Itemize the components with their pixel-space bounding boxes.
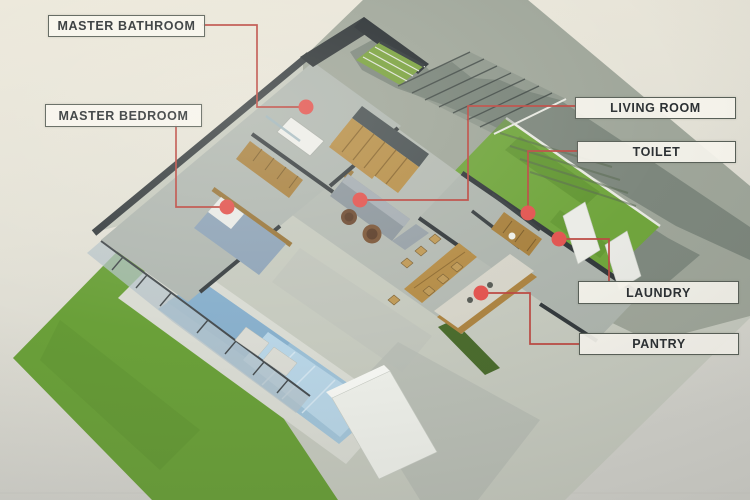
kitchen-stove xyxy=(487,282,493,288)
toilet-fixture xyxy=(509,233,516,240)
label-master-bedroom: MASTER BEDROOM xyxy=(45,104,202,127)
label-pantry-text: PANTRY xyxy=(632,337,686,351)
ottoman-top xyxy=(367,229,378,240)
floor-plan-photo: MASTER BATHROOM MASTER BEDROOM LIVING RO… xyxy=(0,0,750,500)
label-living-room: LIVING ROOM xyxy=(575,97,736,119)
label-living-room-text: LIVING ROOM xyxy=(610,101,701,115)
label-laundry-text: LAUNDRY xyxy=(626,286,691,300)
marker-dot-pantry xyxy=(474,286,489,301)
label-master-bathroom: MASTER BATHROOM xyxy=(48,15,205,37)
isometric-scene xyxy=(0,0,750,500)
label-master-bedroom-text: MASTER BEDROOM xyxy=(59,109,189,123)
label-pantry: PANTRY xyxy=(579,333,739,355)
label-toilet: TOILET xyxy=(577,141,736,163)
marker-dot-toilet xyxy=(521,206,536,221)
marker-dot-laundry xyxy=(552,232,567,247)
label-master-bathroom-text: MASTER BATHROOM xyxy=(58,19,196,33)
kitchen-sink xyxy=(467,297,473,303)
marker-dot-master-bedroom xyxy=(220,200,235,215)
label-laundry: LAUNDRY xyxy=(578,281,739,304)
label-toilet-text: TOILET xyxy=(633,145,681,159)
ottoman-top xyxy=(345,213,354,222)
marker-dot-living-room xyxy=(353,193,368,208)
marker-dot-master-bathroom xyxy=(299,100,314,115)
